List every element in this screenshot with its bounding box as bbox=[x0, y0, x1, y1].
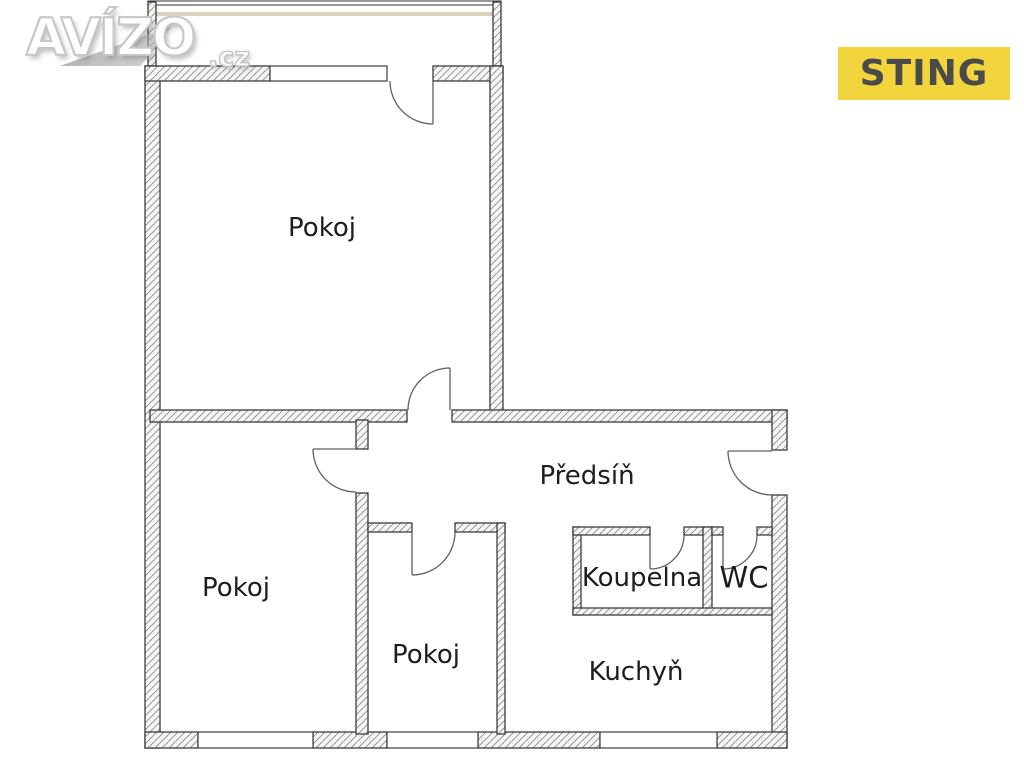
wall-hall-top-right-segment bbox=[452, 410, 787, 422]
floor-plan-drawing bbox=[0, 0, 1024, 768]
room-label-kuchyn: Kuchyň bbox=[589, 659, 684, 685]
door-balcony bbox=[390, 81, 433, 124]
wall-leftroom-divider-lower bbox=[356, 493, 368, 734]
wall-right-upper-segment bbox=[772, 410, 787, 450]
window-left-room bbox=[198, 732, 313, 748]
exterior-walls bbox=[145, 66, 787, 748]
balcony-railing bbox=[148, 1, 501, 5]
avizo-tld-text: .cz bbox=[208, 42, 250, 73]
balcony-post-right bbox=[493, 2, 501, 66]
avizo-watermark: AVÍZO .cz bbox=[20, 6, 320, 86]
sting-logo: STING bbox=[838, 47, 1010, 100]
wall-bottom-segment-2 bbox=[313, 732, 387, 748]
wall-bottom-segment-1 bbox=[145, 732, 198, 748]
wall-wc-top-left bbox=[712, 527, 723, 535]
room-label-pokoj-middle: Pokoj bbox=[392, 642, 460, 668]
door-entry bbox=[728, 451, 772, 495]
wall-bathroom-bottom bbox=[573, 608, 772, 615]
wall-bottom-segment-4 bbox=[717, 732, 787, 748]
doors bbox=[313, 81, 772, 575]
wall-right-lower-segment bbox=[772, 495, 787, 748]
door-middle-room bbox=[412, 532, 455, 575]
room-label-wc: WC bbox=[720, 564, 769, 593]
wall-wc-top-right bbox=[757, 527, 772, 535]
wall-bathroom-wc-divider bbox=[703, 527, 712, 615]
wall-bathroom-left bbox=[573, 527, 581, 615]
room-label-koupelna: Koupelna bbox=[582, 565, 702, 591]
room-label-predsin: Předsíň bbox=[539, 463, 634, 489]
door-left-room bbox=[313, 449, 356, 492]
room-label-pokoj-top: Pokoj bbox=[288, 215, 356, 241]
wall-bottom-segment-3 bbox=[478, 732, 600, 748]
wall-leftroom-divider-upper bbox=[356, 420, 368, 449]
room-label-pokoj-left: Pokoj bbox=[202, 575, 270, 601]
avizo-brand-text: AVÍZO bbox=[26, 8, 194, 68]
window-middle-room bbox=[387, 732, 478, 748]
window-kitchen bbox=[600, 732, 717, 748]
wall-midroom-right bbox=[497, 523, 505, 734]
wall-top-room-right bbox=[490, 66, 503, 422]
door-top-room bbox=[408, 368, 450, 410]
sting-logo-text: STING bbox=[860, 53, 989, 94]
wall-midroom-top-left bbox=[368, 523, 412, 532]
wall-bathroom-top-left bbox=[573, 527, 650, 535]
wall-left bbox=[145, 66, 160, 748]
floor-plan-page: Pokoj Pokoj Pokoj Předsíň Koupelna WC Ku… bbox=[0, 0, 1024, 768]
